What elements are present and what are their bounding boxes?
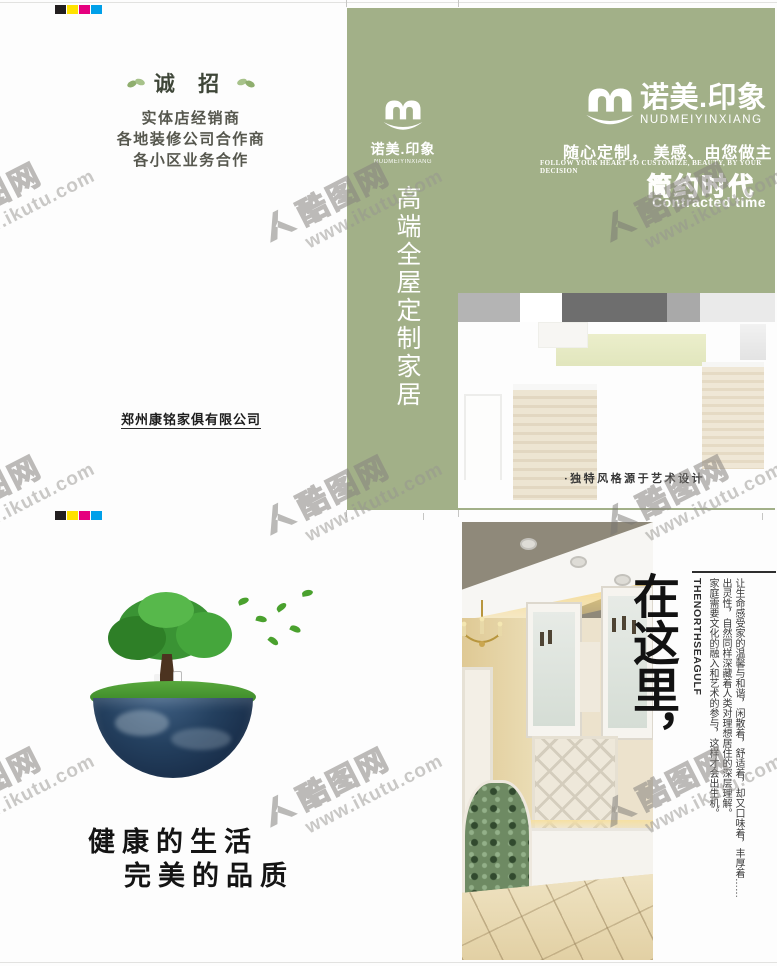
paragraph-column: 出灵性，自然同样深藏着人类对理想居住的深层理解。: [719, 578, 732, 900]
paragraph-column: 让生命感受家的温馨与和谐，闲散着，舒适着，却又口味着，丰厚着……: [732, 578, 745, 900]
reg-black-swatch: [55, 5, 66, 14]
vertical-paragraph: 让生命感受家的温馨与和谐，闲散着，舒适着，却又口味着，丰厚着…… 出灵性，自然同…: [706, 578, 745, 900]
leaf-ornament-icon: [237, 77, 255, 89]
cover-brand-logo: [583, 82, 637, 133]
recruit-line: 各地装修公司合作商: [60, 129, 322, 150]
fold-mark: [346, 0, 347, 7]
flying-leaf-icon: [267, 635, 279, 647]
gray-block: [667, 293, 700, 322]
color-registration-mark: [55, 511, 102, 520]
recruit-block: 诚 招 实体店经销商 各地装修公司合作商 各小区业务合作: [60, 68, 322, 171]
earth-hemisphere: [93, 698, 253, 778]
bottom-crop-line: [0, 962, 777, 963]
reg-magenta-swatch: [79, 511, 90, 520]
gray-block: [458, 293, 520, 322]
recessed-light: [520, 538, 537, 550]
watermark-url: www.ikutu.com: [0, 425, 165, 547]
slogan-line-2: 完美的品质: [124, 854, 294, 893]
bottle: [540, 632, 544, 646]
recruit-line: 实体店经销商: [60, 108, 322, 129]
paragraph-rule: [692, 571, 776, 573]
reg-cyan-swatch: [91, 5, 102, 14]
recessed-light: [570, 556, 587, 568]
brand-logo-icon: [583, 82, 637, 128]
recruit-heading-row: 诚 招: [60, 68, 322, 98]
open-shelf: [580, 642, 600, 712]
photo-header-blocks: [458, 293, 775, 322]
fold-mark: [458, 0, 459, 7]
cover-era-subtitle: Contracted time: [652, 194, 766, 210]
brochure-design-sheet: 诚 招 实体店经销商 各地装修公司合作商 各小区业务合作 郑州康铭家俱有限公司 …: [0, 0, 777, 966]
cover-brand-block: 诺美.印象 NUDMEIYINXIANG: [640, 83, 767, 126]
fold-mark: [458, 510, 459, 517]
earth-tree-graphic: [80, 560, 320, 805]
inside-headline: 在这里，: [626, 572, 678, 760]
kutu-logo-icon: [256, 203, 300, 245]
interior-photo: [462, 522, 653, 960]
color-registration-mark: [55, 5, 102, 14]
spine-brand-name: 诺美.印象: [363, 139, 443, 159]
tree-canopy-highlight: [138, 592, 194, 628]
photo-caption: ·独特风格源于艺术设计: [564, 470, 705, 486]
kitchen-scene: ·独特风格源于艺术设计: [458, 322, 775, 508]
kutu-logo-icon: [256, 496, 300, 538]
watermark-brand: 酷图网: [0, 442, 48, 526]
flying-leaf-icon: [255, 615, 267, 624]
watermark-brand: 酷图网: [0, 734, 48, 818]
kitchen-photo: ·独特风格源于艺术设计: [458, 293, 775, 508]
flying-leaf-icon: [237, 596, 249, 605]
reg-yellow-swatch: [67, 5, 78, 14]
white-block: [520, 293, 562, 322]
brand-logo-icon: [381, 96, 425, 132]
fold-mark: [762, 513, 763, 520]
flying-leaf-icon: [289, 624, 302, 634]
leaf-ornament-icon: [127, 77, 145, 89]
spine-brand-name-latin: NUDMEIYINXIANG: [363, 159, 443, 165]
fold-mark: [423, 513, 424, 520]
company-name-block: 郑州康铭家俱有限公司: [60, 409, 322, 429]
bottle: [612, 618, 616, 632]
spine-vertical-title: 高端全屋定制家居: [389, 185, 425, 409]
paragraph-column: 家庭需要文化的融入和艺术的参与，这样才会出生机。: [706, 578, 719, 900]
recruit-line: 各小区业务合作: [60, 150, 322, 171]
fold-mark: [346, 510, 347, 517]
light-gray-block: [700, 293, 775, 322]
top-crop-line: [0, 2, 777, 3]
bottle: [548, 630, 552, 644]
glass-display-cabinet: [526, 602, 582, 738]
reg-cyan-swatch: [91, 511, 102, 520]
reg-yellow-swatch: [67, 511, 78, 520]
recruit-heading: 诚 招: [154, 68, 228, 98]
cover-brand-name-latin: NUDMEIYINXIANG: [640, 114, 767, 126]
spine-brand-block: 诺美.印象 NUDMEIYINXIANG: [363, 96, 443, 165]
watermark-brand: 酷图网: [0, 149, 48, 233]
reg-magenta-swatch: [79, 5, 90, 14]
dark-gray-block: [562, 293, 667, 322]
vertical-english-label: THENORTHSEAGULF: [691, 578, 703, 696]
reg-black-swatch: [55, 511, 66, 520]
company-name: 郑州康铭家俱有限公司: [121, 412, 261, 429]
cover-brand-name: 诺美.印象: [640, 83, 767, 113]
flying-leaf-icon: [302, 589, 314, 597]
flying-leaf-icon: [275, 601, 287, 612]
